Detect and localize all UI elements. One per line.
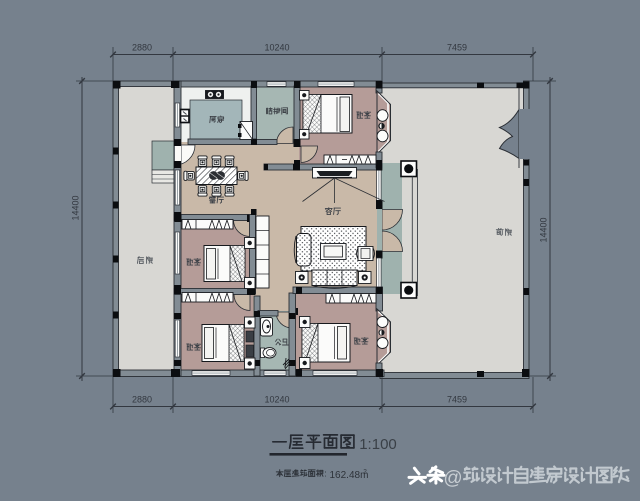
svg-text:2880: 2880: [132, 395, 152, 405]
svg-text:7459: 7459: [447, 395, 467, 405]
svg-text:14400: 14400: [71, 195, 81, 220]
svg-text::: :: [324, 469, 327, 479]
svg-text:2880: 2880: [132, 43, 152, 53]
svg-text:@: @: [443, 468, 462, 489]
svg-text:10240: 10240: [264, 395, 289, 405]
svg-text:2: 2: [363, 469, 367, 476]
svg-text:1:100: 1:100: [359, 436, 397, 453]
svg-text:14400: 14400: [539, 217, 549, 242]
svg-text:10240: 10240: [264, 43, 289, 53]
svg-text:7459: 7459: [447, 43, 467, 53]
